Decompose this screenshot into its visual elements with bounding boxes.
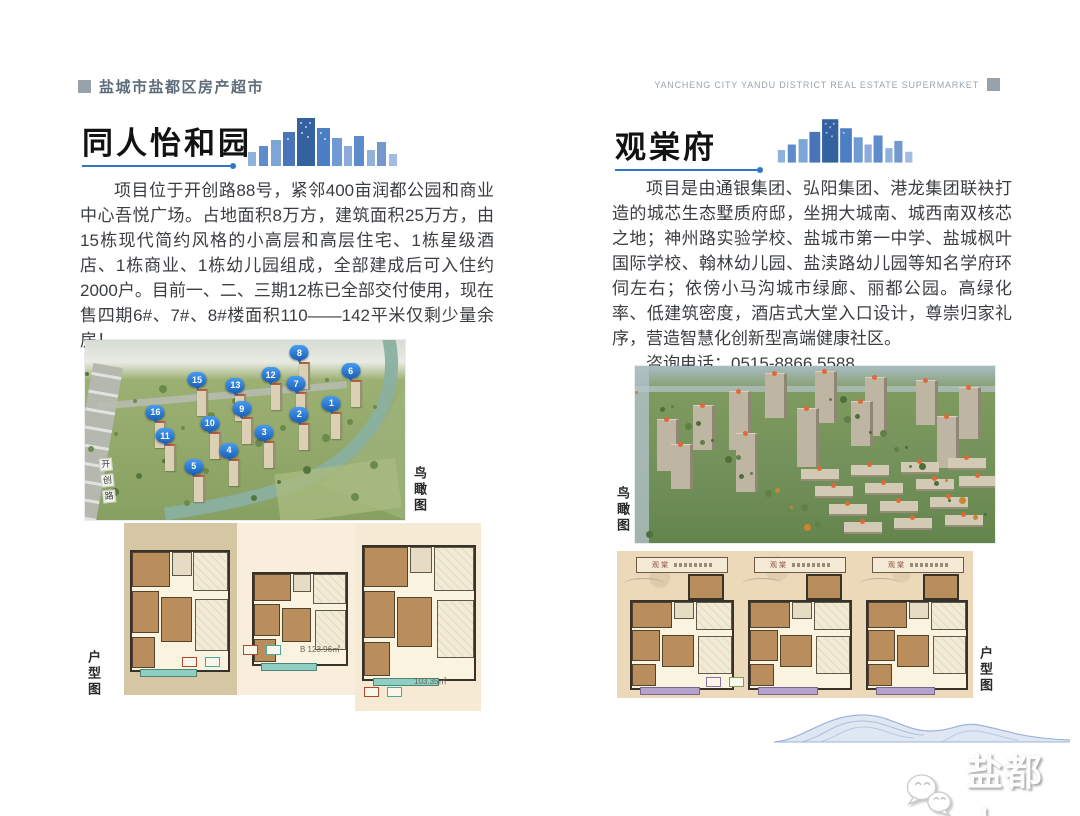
floorplan-legend — [182, 657, 220, 667]
brand-square-icon — [987, 78, 1000, 91]
tower-graphic — [671, 444, 693, 489]
floor-plan-annex-room — [688, 574, 724, 600]
room-graphic — [696, 602, 732, 630]
tree-graphic — [894, 447, 899, 452]
tree-graphic — [905, 446, 908, 449]
tree-graphic — [635, 391, 638, 394]
odot-graphic — [923, 378, 928, 383]
tree-graphic — [370, 461, 378, 469]
odot-graphic — [817, 466, 822, 471]
building-pin-11: 11 — [156, 428, 175, 443]
room-graphic — [933, 636, 966, 674]
floorplan-header: 观棠 — [636, 557, 728, 573]
room-graphic — [897, 635, 928, 668]
room-graphic — [410, 547, 432, 573]
building-pin-6: 6 — [341, 363, 360, 378]
floorplan-header: 观棠 — [754, 557, 846, 573]
building-pin-2: 2 — [290, 407, 309, 422]
room-graphic — [364, 642, 390, 676]
odot-graphic — [678, 442, 683, 447]
tree-graphic — [801, 504, 808, 511]
rowbld-graphic — [829, 504, 867, 516]
building-pin-4: 4 — [220, 443, 239, 458]
mountain-decoration — [860, 578, 900, 589]
building-pin-15: 15 — [188, 372, 207, 387]
balc-p-graphic — [640, 687, 700, 695]
floor-plan-thumbnail — [362, 545, 476, 681]
tree-graphic — [934, 481, 939, 486]
tree-graphic — [711, 439, 714, 442]
floor-plan-thumbnail — [866, 600, 968, 690]
balc-t-graphic — [140, 669, 198, 677]
brand-title-en: YANCHENG CITY YANDU DISTRICT REAL ESTATE… — [654, 79, 979, 90]
building-pin-7: 7 — [287, 376, 306, 391]
rowbld-graphic — [815, 486, 853, 498]
tree-graphic — [815, 522, 820, 527]
title-underline — [82, 165, 230, 167]
odot-graphic — [664, 417, 669, 422]
mountain-decoration — [624, 578, 664, 589]
rowbld-graphic — [894, 518, 932, 530]
room-graphic — [132, 591, 159, 633]
city-skyline-icon — [246, 112, 401, 170]
room-graphic — [909, 602, 929, 619]
building-pin-5: 5 — [184, 459, 203, 474]
tree-graphic — [671, 405, 674, 408]
tree-graphic — [660, 407, 665, 412]
building-pin-9: 9 — [232, 401, 251, 416]
floorplan-legend — [243, 645, 281, 655]
publisher-watermark: 盐都人 — [903, 742, 1080, 816]
room-graphic — [632, 602, 672, 628]
room-graphic — [931, 602, 966, 630]
building-pin-12: 12 — [261, 367, 280, 382]
publisher-name: 盐都人 — [966, 742, 1080, 816]
room-graphic — [397, 597, 432, 647]
listing2-title: 观棠府 — [615, 122, 717, 167]
building-pin-13: 13 — [226, 378, 245, 393]
room-graphic — [172, 552, 191, 576]
tree-graphic — [736, 455, 741, 460]
mountain-decoration — [742, 578, 782, 589]
room-graphic — [161, 597, 192, 642]
balc-p-graphic — [758, 687, 818, 695]
tree-graphic — [880, 430, 887, 437]
tree-graphic — [159, 385, 167, 393]
floorplan-legend — [364, 687, 402, 697]
tree-graphic — [775, 488, 780, 493]
tree-graphic — [725, 456, 732, 463]
floor-plan-thumbnail — [130, 550, 230, 672]
listing2-description: 项目是由通银集团、弘阳集团、港龙集团联袂打造的城芯生态墅质府邸，坐拥大城南、城西… — [612, 176, 1012, 351]
tree-graphic — [114, 432, 118, 436]
building-pin-10: 10 — [200, 416, 219, 431]
tower-graphic — [851, 401, 873, 446]
listing1-aerial-image: 开 创 路 861215137192161031145 — [85, 340, 405, 520]
tree-graphic — [303, 466, 311, 474]
room-graphic — [254, 574, 291, 601]
floorplan-legend — [706, 677, 744, 687]
tree-graphic — [840, 396, 847, 403]
tree-graphic — [646, 531, 653, 538]
title-underline — [615, 169, 757, 171]
room-graphic — [816, 636, 850, 674]
tower-graphic — [765, 373, 787, 418]
room-graphic — [662, 635, 694, 668]
balc-p-graphic — [876, 687, 935, 695]
room-graphic — [814, 602, 850, 630]
room-graphic — [632, 664, 656, 686]
floor-plan-annex-room — [923, 574, 959, 600]
city-skyline-icon — [776, 110, 916, 170]
tower-graphic — [797, 408, 819, 467]
tree-graphic — [322, 434, 330, 442]
room-graphic — [750, 630, 778, 661]
tree-graphic — [804, 524, 811, 531]
balc-t-graphic — [261, 663, 316, 671]
tree-graphic — [373, 405, 377, 409]
listing2-description-block: 项目是由通银集团、弘阳集团、港龙集团联袂打造的城芯生态墅质府邸，坐拥大城南、城西… — [612, 176, 1012, 376]
room-graphic — [364, 591, 395, 639]
tree-graphic — [351, 493, 359, 501]
room-graphic — [632, 630, 660, 661]
listing2-aerial-image — [635, 366, 995, 543]
wechat-chat-bubbles-icon — [903, 770, 958, 816]
room-graphic — [750, 664, 774, 686]
tree-graphic — [909, 465, 912, 468]
room-graphic — [698, 636, 732, 674]
room-graphic — [254, 604, 280, 636]
tree-graphic — [959, 497, 966, 504]
tree-graphic — [945, 479, 948, 482]
tree-graphic — [855, 414, 860, 419]
aerial-view-label: 鸟瞰图 — [613, 486, 632, 534]
floor-plan-thumbnail — [748, 600, 852, 690]
brand-left: 盐城市盐都区房产超市 — [78, 76, 264, 97]
aerial-view-label: 鸟瞰图 — [410, 466, 429, 514]
building-pin-3: 3 — [255, 425, 274, 440]
floorplan-label: 户型图 — [976, 646, 995, 694]
room-graphic — [780, 635, 812, 668]
floorplan-area-note: B 123.96㎡ — [300, 644, 340, 655]
floorplan-header: 观棠 — [872, 557, 964, 573]
tree-graphic — [984, 513, 987, 516]
brand-square-icon — [78, 80, 91, 93]
tower-graphic — [736, 433, 758, 492]
tree-graphic — [280, 425, 286, 431]
tree-graphic — [325, 378, 329, 382]
odot-graphic — [736, 389, 741, 394]
brochure-page: 盐城市盐都区房产超市 YANCHENG CITY YANDU DISTRICT … — [0, 0, 1080, 816]
odot-graphic — [772, 371, 777, 376]
room-graphic — [674, 602, 694, 619]
tower-graphic — [916, 380, 938, 425]
building-pin-1: 1 — [322, 396, 341, 411]
room-graphic — [750, 602, 790, 628]
odot-graphic — [860, 519, 865, 524]
room-graphic — [193, 552, 228, 591]
room-graphic — [434, 547, 474, 591]
floor-plan-annex-room — [806, 574, 842, 600]
tree-graphic — [765, 490, 772, 497]
floorplan-label: 户型图 — [84, 650, 103, 698]
tree-graphic — [948, 499, 951, 502]
room-graphic — [132, 637, 155, 668]
room-graphic — [792, 602, 812, 619]
room-graphic — [364, 547, 408, 587]
odot-graphic — [700, 403, 705, 408]
odot-graphic — [975, 473, 980, 478]
room-graphic — [868, 602, 907, 628]
room-graphic — [282, 608, 311, 642]
building-pin-8: 8 — [290, 345, 309, 360]
room-graphic — [868, 664, 892, 686]
tree-graphic — [790, 506, 793, 509]
tree-graphic — [685, 423, 692, 430]
tower-graphic — [959, 387, 981, 439]
listing1-description: 项目位于开创路88号，紧邻400亩润都公园和商业中心吾悦广场。占地面积8万方，建… — [80, 178, 494, 353]
listing1-title: 同人怡和园 — [82, 118, 252, 163]
room-graphic — [195, 599, 228, 651]
tree-graphic — [844, 416, 851, 423]
brand-title-zh: 盐城市盐都区房产超市 — [99, 76, 264, 97]
building-pin-16: 16 — [146, 405, 165, 420]
brand-right: YANCHENG CITY YANDU DISTRICT REAL ESTATE… — [654, 78, 1000, 91]
room-graphic — [293, 574, 311, 592]
odot-graphic — [896, 498, 901, 503]
floorplan-area-note: 103.35㎡ — [414, 676, 446, 687]
room-graphic — [437, 600, 474, 658]
room-graphic — [313, 574, 346, 604]
room-graphic — [132, 552, 170, 587]
room-graphic — [868, 630, 895, 661]
odot-graphic — [961, 512, 966, 517]
